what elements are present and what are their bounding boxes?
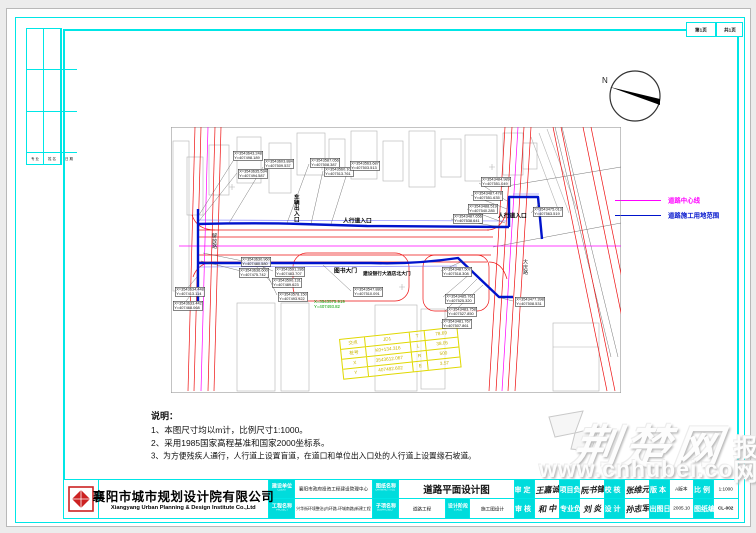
north-compass: N: [599, 65, 671, 129]
north-label: N: [602, 76, 608, 85]
notes-title: 说明：: [151, 409, 481, 422]
legend: 道路中心线 道路施工用地范围: [615, 193, 755, 223]
subproject-value: 道路工程: [399, 499, 446, 518]
coord-label: X=3543591.286Y=407483.707: [275, 267, 305, 277]
note-line: 2、采用1985国家高程基准和国家2000坐标系。: [151, 437, 481, 450]
compass-needle: [610, 87, 660, 105]
library-gate-label: 图书大门: [334, 267, 357, 275]
scale-label: 比 例SCALE: [694, 480, 714, 498]
coord-label: X=3543634.448Y=407413.114: [175, 287, 205, 297]
coord-label: X=3543643.248Y=407498.189: [233, 151, 263, 161]
date-label: 出图日期DATE: [650, 499, 670, 518]
checked-signature: 张维元: [625, 483, 650, 496]
approved-signature: 王嘉诚: [535, 483, 560, 496]
coord-label: X=3543487.656Y=407538.641: [453, 214, 483, 224]
drawing-sheet: 专 业 姓 名 日 期 第1页 共1页 N 道路中心线 道路施工用地范围: [6, 8, 751, 527]
designed-label: 设 计DESIGNED: [605, 499, 625, 518]
legend-item-construction-range: 道路施工用地范围: [615, 208, 755, 223]
stage-label: 设计阶段STAGE: [446, 499, 470, 518]
discipline-leader-label: 专业负责DISCIPLINE: [560, 499, 580, 518]
notes: 说明： 1、本图尺寸均以m计，比例尺寸1:1000。 2、采用1985国家高程基…: [151, 409, 481, 463]
coord-label: X=3543547.880Y=407510.091: [353, 287, 383, 297]
coord-label: X=3543487.478Y=407551.635: [473, 191, 503, 201]
coord-label: X=3543481.767Y=407507.861: [442, 319, 472, 329]
coord-label: X=3543485.761Y=407525.320: [445, 294, 475, 304]
note-line: 1、本图尺寸均以m计，比例尺寸1:1000。: [151, 424, 481, 437]
coord-label: X=3543483.758Y=407527.850: [447, 307, 477, 317]
client-value: 襄阳市政府投资工程建设管理中心: [295, 480, 372, 499]
sheet-total-box: 共1页: [716, 22, 743, 37]
note-line: 3、为方便残疾人通行，人行道上设置盲道，在道口和单位出入口处的人行道上设置缘石坡…: [151, 450, 455, 462]
discipline-leader-signature: 刘 炎: [580, 502, 604, 515]
approved-label: 审 定APPROVED: [515, 480, 535, 498]
road-name-left: 解放路: [210, 233, 218, 249]
legend-item-centerline: 道路中心线: [615, 193, 755, 208]
coord-label: X=3543487.507Y=407518.308: [442, 267, 472, 277]
construction-range-swatch: [615, 215, 661, 216]
strip-label: 日 期: [65, 156, 73, 162]
signature-strip: 专 业 姓 名 日 期: [26, 28, 62, 165]
drawing-title-label: 图纸名称DRAWING TITLE: [373, 480, 398, 499]
project-value: 兴华街环境整治(内环路-环城南路)新建工程: [295, 499, 372, 518]
strip-label: 姓 名: [48, 156, 56, 162]
drawing-title-value: 道路平面设计图: [399, 480, 514, 499]
subproject-label: 子项名称SUBPROJECT: [373, 499, 398, 518]
project-manager-label: 项目负责PROJ MGR: [560, 480, 580, 498]
logo-icon: [68, 486, 94, 512]
road-name-right: 大庆路: [521, 259, 529, 275]
edition-value: A版本: [670, 484, 693, 494]
scale-value: 1:1000: [714, 486, 738, 493]
coord-label: X=3543633.442Y=407468.068: [173, 301, 203, 311]
examined-label: 审 核EXAMINED: [515, 499, 535, 518]
project-manager-signature: 阮书锋: [580, 483, 605, 496]
drawing-no-label: 图纸编号DRAWING No.: [694, 499, 714, 518]
sheet-number-box: 第1页: [686, 22, 716, 37]
coord-label: X=3543590.131Y=407489.623: [272, 278, 302, 288]
checked-label: 校 核CHECKED: [605, 480, 625, 498]
bank-gate-label: 建设银行大酒店北大门: [363, 270, 411, 277]
examined-signature: 和 中: [535, 502, 559, 515]
coord-label: X=3543488.519Y=407540.285: [468, 204, 498, 214]
coord-label: X=3543630.960Y=407480.580: [241, 257, 271, 267]
coord-label: X=3543636.600Y=407475.742: [239, 268, 269, 278]
coord-label: X=3543475.013Y=407563.519: [533, 207, 563, 217]
strip-label: 专 业: [31, 156, 39, 162]
company-name: 襄阳市城市规划设计院有限公司 Xiangyang Urban Planning …: [99, 480, 269, 518]
title-block: 襄阳市城市规划设计院有限公司 Xiangyang Urban Planning …: [63, 479, 739, 519]
coord-label: X=3543635.534Y=407494.587: [238, 169, 268, 179]
designed-signature: 孙志军: [625, 502, 650, 515]
edition-label: 版 本EDITION: [650, 480, 670, 498]
centerline-swatch: [615, 200, 661, 201]
coord-label: X=3543578.150Y=407493.922: [278, 292, 308, 302]
pedestrian-entrance-label: 人行道入口: [498, 212, 527, 220]
coord-label: X=3543603.884Y=407509.537: [264, 159, 294, 169]
vehicle-entrance-label: 车辆出入口: [292, 194, 300, 222]
green-control-point: X=3543575.919 Y=407493.82: [314, 300, 345, 309]
date-value: 2005.10: [670, 505, 694, 512]
coord-label: X=3543563.687Y=407503.513: [350, 161, 380, 171]
drawing-no-value: CL-002: [714, 505, 738, 512]
coord-label: X=3543484.989Y=407551.049: [481, 177, 511, 187]
coord-label: X=3543477.398Y=407508.531: [515, 297, 545, 307]
pedestrian-entrance-label: 人行道入口: [343, 217, 372, 225]
stage-value: 施工图设计: [470, 499, 514, 518]
